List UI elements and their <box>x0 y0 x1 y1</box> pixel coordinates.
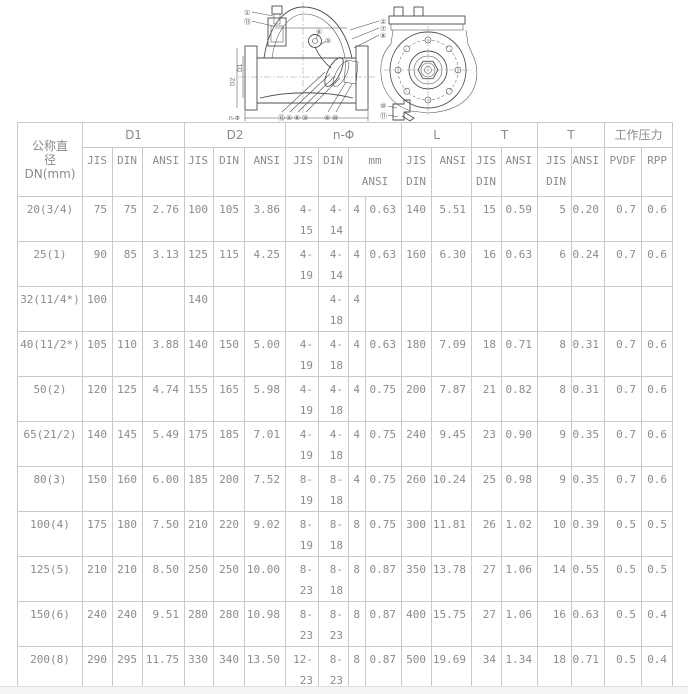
table-cell: 90 <box>83 242 113 287</box>
table-cell: 25 <box>472 467 502 512</box>
table-cell: 400 <box>402 602 432 647</box>
table-row: 20(3/4)75752.761001053.864- 154- 1440.63… <box>18 197 673 242</box>
table-cell: 115 <box>214 242 245 287</box>
table-cell: 7.09 <box>432 332 472 377</box>
table-cell: 4- 18 <box>319 422 349 467</box>
table-cell: 8 <box>349 557 366 602</box>
table-cell: 0.6 <box>642 467 673 512</box>
callout-10b-icon: ⑩ <box>380 102 386 110</box>
table-cell: 4- 14 <box>319 197 349 242</box>
table-cell: 155 <box>185 377 214 422</box>
table-row: 65(21/2)1401455.491751857.014- 194- 1840… <box>18 422 673 467</box>
table-cell: 0.87 <box>366 602 402 647</box>
table-cell: 0.71 <box>572 647 605 692</box>
table-cell: 4 <box>349 197 366 242</box>
body-arch-outer <box>264 7 352 58</box>
table-cell: 340 <box>214 647 245 692</box>
table-cell: 0.6 <box>642 242 673 287</box>
table-cell: 140 <box>185 287 214 332</box>
table-cell: 4- 18 <box>319 377 349 422</box>
table-cell: 4- 19 <box>286 377 319 422</box>
table-cell: 0.5 <box>605 647 642 692</box>
table-cell: 4- 18 <box>319 287 349 332</box>
left-flange <box>245 46 257 110</box>
table-cell: 8- 23 <box>286 602 319 647</box>
table-cell: 175 <box>185 422 214 467</box>
leader-13 <box>252 21 273 26</box>
table-cell: 5.98 <box>245 377 286 422</box>
table-cell: 4 <box>349 242 366 287</box>
table-cell: 9 <box>538 422 572 467</box>
table-cell: 16 <box>538 602 572 647</box>
table-cell: 7.01 <box>245 422 286 467</box>
table-cell: 125 <box>113 377 143 422</box>
callout-13-icon: ⑬ <box>244 18 251 26</box>
table-cell: 8- 23 <box>286 557 319 602</box>
dim-label-d1: D1 <box>237 63 244 72</box>
subheader-2: ANSI <box>143 148 185 197</box>
table-row: 80(3)1501606.001852007.528- 198- 1840.75… <box>18 467 673 512</box>
header-group-0: D1 <box>83 123 185 148</box>
table-cell: 0.31 <box>572 377 605 422</box>
table-cell: 0.75 <box>366 377 402 422</box>
hinge-pin-center <box>313 39 318 44</box>
table-cell: 0.7 <box>605 467 642 512</box>
table-cell: 0.20 <box>572 197 605 242</box>
cap-bolt-left <box>394 7 403 16</box>
table-cell: 0.6 <box>642 197 673 242</box>
callout-5-icon: ⑤ <box>325 37 331 45</box>
leader-10a <box>336 84 352 112</box>
table-cell: 200 <box>214 467 245 512</box>
table-row: 200(8)29029511.7533034013.5012- 238- 238… <box>18 647 673 692</box>
table-cell: 8- 19 <box>286 467 319 512</box>
dim-label-d2: D2 <box>230 77 237 86</box>
table-cell: 210 <box>185 512 214 557</box>
table-cell <box>502 287 538 332</box>
header-group-2: n-Φ <box>286 123 402 148</box>
table-cell: 250 <box>214 557 245 602</box>
table-cell: 10 <box>538 512 572 557</box>
callout-12-icon: ⑫ <box>278 114 285 122</box>
table-cell: 0.63 <box>366 242 402 287</box>
table-cell: 4- 18 <box>319 332 349 377</box>
subheader-3: JIS <box>185 148 214 197</box>
table-cell: 0.98 <box>502 467 538 512</box>
cap-plate <box>389 16 465 24</box>
table-cell <box>286 287 319 332</box>
subheader-9: JIS DIN <box>402 148 432 197</box>
table-cell: 7.52 <box>245 467 286 512</box>
table-cell: 140 <box>402 197 432 242</box>
table-cell: 4- 15 <box>286 197 319 242</box>
table-cell: 0.7 <box>605 197 642 242</box>
table-cell: 5.49 <box>143 422 185 467</box>
table-cell: 13.50 <box>245 647 286 692</box>
table-cell: 0.87 <box>366 557 402 602</box>
table-cell: 0.4 <box>642 647 673 692</box>
table-cell: 0.7 <box>605 332 642 377</box>
callout-10-icon: ⑩ <box>332 114 338 122</box>
table-cell: 280 <box>185 602 214 647</box>
table-cell: 8- 18 <box>319 512 349 557</box>
callout-9-icon: ⑨ <box>324 114 330 122</box>
table-cell: 185 <box>185 467 214 512</box>
table-cell: 11.81 <box>432 512 472 557</box>
table-cell: 3.86 <box>245 197 286 242</box>
table-cell: 0.24 <box>572 242 605 287</box>
hinge-pin <box>309 35 322 48</box>
table-cell: 0.39 <box>572 512 605 557</box>
table-cell: 5.51 <box>432 197 472 242</box>
callout-11-icon: ⑪ <box>380 112 387 120</box>
table-cell: 160 <box>402 242 432 287</box>
table-cell: 180 <box>113 512 143 557</box>
cell-dn: 20(3/4) <box>18 197 83 242</box>
subheader-12: ANSI <box>502 148 538 197</box>
cell-dn: 65(21/2) <box>18 422 83 467</box>
table-cell <box>432 287 472 332</box>
table-cell: 350 <box>402 557 432 602</box>
subheader-6: JIS <box>286 148 319 197</box>
table-cell: 15 <box>472 197 502 242</box>
table-cell <box>472 287 502 332</box>
table-cell: 0.5 <box>642 512 673 557</box>
table-cell: 0.87 <box>366 647 402 692</box>
table-cell: 18 <box>538 647 572 692</box>
leader-2 <box>350 21 379 30</box>
table-cell: 0.7 <box>605 377 642 422</box>
valve-technical-drawing: D2 D1 n-Φ ① ⑬ ⑥ ⑤ ② ⑦ ⑧ ⑫ ④ ⑥ ③ ⑨ ⑩ <box>228 0 538 124</box>
callout-4-icon: ④ <box>286 114 292 122</box>
table-cell: 300 <box>402 512 432 557</box>
subheader-11: JIS DIN <box>472 148 502 197</box>
table-cell: 160 <box>113 467 143 512</box>
table-cell: 200 <box>402 377 432 422</box>
disc-plate <box>330 59 352 88</box>
table-cell: 23 <box>472 422 502 467</box>
table-cell: 0.82 <box>502 377 538 422</box>
table-cell: 7.87 <box>432 377 472 422</box>
table-cell: 0.59 <box>502 197 538 242</box>
table-body: 20(3/4)75752.761001053.864- 154- 1440.63… <box>18 197 673 692</box>
table-cell: 290 <box>83 647 113 692</box>
table-cell: 330 <box>185 647 214 692</box>
bolt-hole-8 <box>446 46 452 52</box>
table-cell: 19.69 <box>432 647 472 692</box>
table-cell: 4.25 <box>245 242 286 287</box>
table-cell: 0.6 <box>642 332 673 377</box>
subheader-7: DIN <box>319 148 349 197</box>
table-cell: 6.30 <box>432 242 472 287</box>
table-cell: 1.06 <box>502 557 538 602</box>
table-cell: 10.00 <box>245 557 286 602</box>
subheader-15: PVDF <box>605 148 642 197</box>
table-row: 40(11/2*)1051103.881401505.004- 194- 184… <box>18 332 673 377</box>
table-cell: 9.02 <box>245 512 286 557</box>
table-cell: 75 <box>83 197 113 242</box>
table-cell: 4 <box>349 287 366 332</box>
subheader-13: JIS DIN <box>538 148 572 197</box>
cell-dn: 40(11/2*) <box>18 332 83 377</box>
table-cell: 7.50 <box>143 512 185 557</box>
table-cell: 21 <box>472 377 502 422</box>
table-cell: 240 <box>402 422 432 467</box>
table-cell: 1.06 <box>502 602 538 647</box>
dimension-table: 公称直 径 DN(mm)D1D2n-ΦLTT工作压力JISDINANSIJISD… <box>17 122 673 692</box>
table-cell: 240 <box>83 602 113 647</box>
header-nominal-diameter: 公称直 径 DN(mm) <box>18 123 83 197</box>
table-cell: 6 <box>538 242 572 287</box>
table-cell: 250 <box>185 557 214 602</box>
table-cell: 13.78 <box>432 557 472 602</box>
table-cell: 4- 19 <box>286 422 319 467</box>
table-cell: 16 <box>472 242 502 287</box>
table-cell: 12- 23 <box>286 647 319 692</box>
table-cell: 5.00 <box>245 332 286 377</box>
cell-dn: 80(3) <box>18 467 83 512</box>
table-cell: 1.34 <box>502 647 538 692</box>
table-cell: 0.35 <box>572 422 605 467</box>
table-cell: 8 <box>538 377 572 422</box>
table-cell: 27 <box>472 602 502 647</box>
table-row: 25(1)90853.131251154.254- 194- 1440.6316… <box>18 242 673 287</box>
table-cell: 0.31 <box>572 332 605 377</box>
bonnet-bolt-head <box>272 6 282 14</box>
callout-8-icon: ⑧ <box>380 32 386 40</box>
table-cell: 210 <box>83 557 113 602</box>
table-row: 50(2)1201254.741551655.984- 194- 1840.75… <box>18 377 673 422</box>
table-cell: 0.75 <box>366 422 402 467</box>
table-cell: 3.88 <box>143 332 185 377</box>
table-cell: 8- 18 <box>319 557 349 602</box>
table-cell: 8- 18 <box>319 467 349 512</box>
table-cell: 220 <box>214 512 245 557</box>
table-cell: 75 <box>113 197 143 242</box>
header-group-5: T <box>538 123 605 148</box>
table-cell: 295 <box>113 647 143 692</box>
table-cell: 165 <box>214 377 245 422</box>
table-cell: 100 <box>83 287 113 332</box>
table-cell: 110 <box>113 332 143 377</box>
bottom-margin-strip <box>0 686 688 694</box>
leader-10b <box>388 106 397 108</box>
subheader-10: ANSI <box>432 148 472 197</box>
table-cell: 0.35 <box>572 467 605 512</box>
table-cell: 150 <box>83 467 113 512</box>
table-cell: 100 <box>185 197 214 242</box>
table-cell: 8 <box>349 602 366 647</box>
cap-plate-lower <box>391 24 463 30</box>
table-cell: 4 <box>349 422 366 467</box>
table-cell <box>402 287 432 332</box>
table-cell: 140 <box>83 422 113 467</box>
table-cell: 0.5 <box>605 512 642 557</box>
table-cell <box>642 287 673 332</box>
table-cell: 9.51 <box>143 602 185 647</box>
table-cell: 8 <box>538 332 572 377</box>
table-cell: 180 <box>402 332 432 377</box>
table-cell: 2.76 <box>143 197 185 242</box>
bolt-hole-2 <box>446 88 452 94</box>
swing-arm <box>315 47 331 68</box>
callout-6b-icon: ⑥ <box>294 114 300 122</box>
table-cell: 0.63 <box>572 602 605 647</box>
table-cell <box>113 287 143 332</box>
page: { "drawing": { "callouts": ["①","⑬","⑥",… <box>0 0 688 694</box>
table-cell: 3.13 <box>143 242 185 287</box>
table-cell: 240 <box>113 602 143 647</box>
leader-1 <box>252 12 273 16</box>
callout-3-icon: ③ <box>302 114 308 122</box>
cell-dn: 200(8) <box>18 647 83 692</box>
subheader-4: DIN <box>214 148 245 197</box>
cell-dn: 50(2) <box>18 377 83 422</box>
table-cell: 0.4 <box>642 602 673 647</box>
header-group-3: L <box>402 123 472 148</box>
leader-9 <box>328 82 346 112</box>
table-cell: 26 <box>472 512 502 557</box>
table-cell: 8- 23 <box>319 647 349 692</box>
table-row: 32(11/4*)1001404- 184 <box>18 287 673 332</box>
subheader-1: DIN <box>113 148 143 197</box>
header-group-6: 工作压力 <box>605 123 673 148</box>
table-cell: 9.45 <box>432 422 472 467</box>
cell-dn: 100(4) <box>18 512 83 557</box>
right-flange <box>356 46 368 110</box>
table-cell: 8 <box>349 647 366 692</box>
table-cell: 4 <box>349 377 366 422</box>
table-cell: 10.98 <box>245 602 286 647</box>
table-cell: 0.75 <box>366 512 402 557</box>
table-cell: 0.63 <box>366 332 402 377</box>
header-group-4: T <box>472 123 538 148</box>
table-cell: 15.75 <box>432 602 472 647</box>
table-cell <box>572 287 605 332</box>
table-cell: 150 <box>214 332 245 377</box>
subheader-16: RPP <box>642 148 673 197</box>
table-cell: 34 <box>472 647 502 692</box>
table-cell: 0.5 <box>605 602 642 647</box>
callout-1-icon: ① <box>244 9 250 17</box>
table-row: 125(5)2102108.5025025010.008- 238- 1880.… <box>18 557 673 602</box>
table-cell: 0.55 <box>572 557 605 602</box>
cap-bolt-right <box>414 7 423 16</box>
cell-dn: 125(5) <box>18 557 83 602</box>
table-cell: 125 <box>185 242 214 287</box>
table-cell: 105 <box>214 197 245 242</box>
table-cell: 10.24 <box>432 467 472 512</box>
table-cell: 9 <box>538 467 572 512</box>
table-cell: 6.00 <box>143 467 185 512</box>
table-cell: 4- 19 <box>286 332 319 377</box>
table-cell: 0.7 <box>605 422 642 467</box>
table-cell <box>366 287 402 332</box>
dim-label-n-phi: n-Φ <box>229 115 240 122</box>
table-cell: 5 <box>538 197 572 242</box>
table-cell: 8 <box>349 512 366 557</box>
table-cell: 210 <box>113 557 143 602</box>
table-cell: 185 <box>214 422 245 467</box>
table-cell: 4 <box>349 467 366 512</box>
table-cell: 0.5 <box>642 557 673 602</box>
cell-dn: 25(1) <box>18 242 83 287</box>
subheader-0: JIS <box>83 148 113 197</box>
table-cell: 4- 14 <box>319 242 349 287</box>
table-cell: 4.74 <box>143 377 185 422</box>
table-cell: 11.75 <box>143 647 185 692</box>
table-cell <box>605 287 642 332</box>
table-cell: 0.71 <box>502 332 538 377</box>
table-cell <box>245 287 286 332</box>
subheader-5: ANSI <box>245 148 286 197</box>
table-cell: 4 <box>349 332 366 377</box>
table-cell: 8.50 <box>143 557 185 602</box>
table-cell: 260 <box>402 467 432 512</box>
table-cell: 0.75 <box>366 467 402 512</box>
table-cell: 8- 23 <box>319 602 349 647</box>
table-row: 100(4)1751807.502102209.028- 198- 1880.7… <box>18 512 673 557</box>
table-cell: 18 <box>472 332 502 377</box>
table-cell: 105 <box>83 332 113 377</box>
table-cell <box>214 287 245 332</box>
table-cell: 14 <box>538 557 572 602</box>
subheader-8: mm ANSI <box>349 148 402 197</box>
table-cell: 1.02 <box>502 512 538 557</box>
table-cell: 500 <box>402 647 432 692</box>
table-cell: 4- 19 <box>286 242 319 287</box>
table-cell: 27 <box>472 557 502 602</box>
table-cell: 0.6 <box>642 422 673 467</box>
header-group-1: D2 <box>185 123 286 148</box>
table-cell <box>143 287 185 332</box>
table-cell: 175 <box>83 512 113 557</box>
table-cell: 0.6 <box>642 377 673 422</box>
table-cell: 0.7 <box>605 242 642 287</box>
subheader-14: ANSI <box>572 148 605 197</box>
cell-dn: 150(6) <box>18 602 83 647</box>
cell-dn: 32(11/4*) <box>18 287 83 332</box>
table-cell: 0.63 <box>502 242 538 287</box>
table-cell: 0.63 <box>366 197 402 242</box>
table-cell: 145 <box>113 422 143 467</box>
table-cell: 120 <box>83 377 113 422</box>
table-cell: 140 <box>185 332 214 377</box>
table-cell: 280 <box>214 602 245 647</box>
table-header: 公称直 径 DN(mm)D1D2n-ΦLTT工作压力JISDINANSIJISD… <box>18 123 673 197</box>
table-cell: 85 <box>113 242 143 287</box>
table-cell: 0.5 <box>605 557 642 602</box>
table-cell <box>538 287 572 332</box>
table-row: 150(6)2402409.5128028010.988- 238- 2380.… <box>18 602 673 647</box>
table-cell: 8- 19 <box>286 512 319 557</box>
callout-6-icon: ⑥ <box>316 28 322 36</box>
table-cell: 0.90 <box>502 422 538 467</box>
